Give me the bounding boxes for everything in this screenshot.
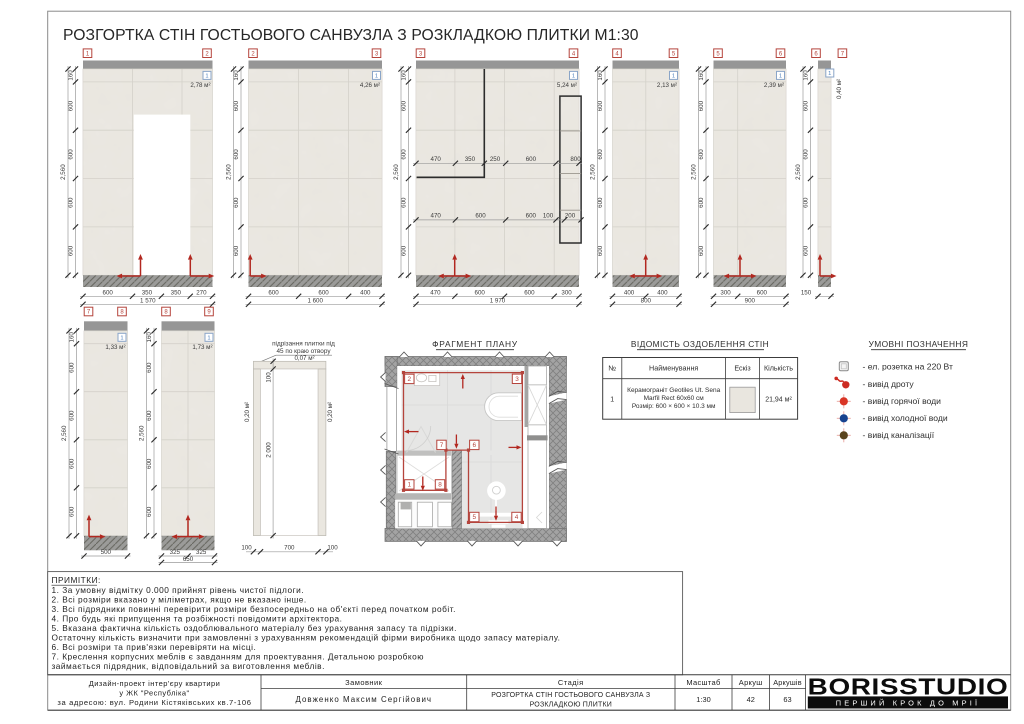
svg-text:РОЗКЛАДКОЮ ПЛИТКИ: РОЗКЛАДКОЮ ПЛИТКИ: [530, 702, 612, 709]
svg-text:600: 600: [698, 149, 705, 160]
svg-text:160: 160: [68, 70, 75, 81]
svg-text:200: 200: [565, 213, 576, 220]
svg-text:за адресою: вул. Родини Кістяк: за адресою: вул. Родини Кістяківських кв…: [57, 698, 251, 707]
svg-text:600: 600: [69, 362, 76, 373]
svg-text:160: 160: [803, 70, 810, 81]
svg-text:1,73 м²: 1,73 м²: [192, 344, 212, 351]
svg-text:600: 600: [103, 289, 114, 296]
svg-text:Масштаб: Масштаб: [686, 678, 720, 687]
svg-text:100: 100: [327, 545, 338, 552]
svg-text:600: 600: [698, 197, 705, 208]
svg-text:1 600: 1 600: [307, 297, 323, 304]
svg-text:600: 600: [401, 149, 408, 160]
svg-text:2,560: 2,560: [393, 164, 400, 180]
svg-text:у ЖК "Республіка": у ЖК "Республіка": [119, 688, 189, 697]
svg-text:1 970: 1 970: [490, 297, 506, 304]
svg-text:160: 160: [401, 70, 408, 81]
svg-text:6. Всі розміри та прив'язки пе: 6. Всі розміри та прив'язки перевіряти н…: [52, 642, 257, 652]
svg-text:Marfil Rect 60x60 см: Marfil Rect 60x60 см: [644, 395, 705, 402]
svg-text:100: 100: [543, 213, 554, 220]
svg-text:2,13 м²: 2,13 м²: [657, 82, 677, 89]
svg-text:800: 800: [641, 297, 652, 304]
svg-text:600: 600: [401, 245, 408, 256]
svg-text:100: 100: [265, 372, 272, 383]
svg-text:5,24 м²: 5,24 м²: [557, 82, 577, 89]
svg-text:160: 160: [69, 332, 76, 343]
svg-text:650: 650: [183, 556, 194, 563]
svg-text:3. Всі підрядники повинні пере: 3. Всі підрядники повинні перевірити роз…: [52, 604, 456, 614]
svg-text:2,560: 2,560: [226, 164, 233, 180]
svg-text:600: 600: [233, 245, 240, 256]
svg-text:Кількість: Кількість: [764, 364, 793, 373]
svg-text:2,560: 2,560: [139, 425, 146, 441]
svg-text:42: 42: [747, 695, 755, 704]
svg-text:№: №: [608, 364, 616, 373]
svg-text:- вивід горячої води: - вивід горячої води: [863, 396, 942, 406]
svg-text:Остаточну кількість визначити: Остаточну кількість визначити при замовл…: [52, 633, 561, 643]
svg-text:1: 1: [408, 482, 412, 489]
svg-text:- вивід каналізації: - вивід каналізації: [863, 430, 935, 440]
svg-text:600: 600: [69, 410, 76, 421]
svg-text:РОЗГОРТКА СТІН ГОСТЬОВОГО САНВ: РОЗГОРТКА СТІН ГОСТЬОВОГО САНВУЗЛА З РОЗ…: [63, 27, 639, 44]
svg-text:3: 3: [515, 376, 519, 383]
svg-text:600: 600: [146, 506, 153, 517]
svg-text:600: 600: [698, 100, 705, 111]
svg-text:600: 600: [475, 289, 486, 296]
svg-text:7. Креслення корпусних меблів: 7. Креслення корпусних меблів є завдання…: [52, 652, 425, 662]
svg-text:ПРИМІТКИ:: ПРИМІТКИ:: [52, 575, 101, 585]
svg-text:900: 900: [745, 297, 756, 304]
svg-text:8: 8: [438, 482, 442, 489]
svg-text:600: 600: [146, 410, 153, 421]
svg-text:2,560: 2,560: [60, 164, 67, 180]
svg-text:325: 325: [170, 549, 181, 556]
svg-text:470: 470: [430, 289, 441, 296]
svg-text:600: 600: [597, 245, 604, 256]
svg-text:2,560: 2,560: [795, 164, 802, 180]
svg-text:600: 600: [803, 197, 810, 208]
svg-text:600: 600: [68, 100, 75, 111]
svg-text:- ел. розетка на 220 Вт: - ел. розетка на 220 Вт: [863, 361, 953, 371]
svg-text:600: 600: [69, 458, 76, 469]
svg-text:700: 700: [284, 545, 295, 552]
svg-text:500: 500: [101, 549, 112, 556]
svg-text:1: 1: [207, 335, 210, 341]
svg-text:250: 250: [490, 156, 501, 163]
svg-text:300: 300: [561, 289, 572, 296]
svg-text:2 000: 2 000: [265, 442, 272, 458]
svg-text:600: 600: [526, 213, 537, 220]
svg-text:600: 600: [233, 100, 240, 111]
svg-text:800: 800: [570, 156, 581, 163]
svg-text:1: 1: [572, 73, 575, 79]
svg-text:2. Всі розміри вказано у мілім: 2. Всі розміри вказано у міліметрах, якщ…: [52, 594, 307, 604]
svg-text:600: 600: [68, 245, 75, 256]
svg-text:600: 600: [146, 458, 153, 469]
svg-text:Аркуш: Аркуш: [739, 678, 763, 687]
svg-text:1: 1: [205, 73, 208, 79]
svg-text:600: 600: [233, 149, 240, 160]
svg-text:63: 63: [783, 695, 791, 704]
svg-text:1:30: 1:30: [696, 695, 710, 704]
svg-text:Найменування: Найменування: [649, 364, 698, 373]
svg-text:1: 1: [120, 335, 123, 341]
svg-text:600: 600: [69, 506, 76, 517]
svg-text:7: 7: [440, 442, 444, 449]
svg-text:Замовник: Замовник: [345, 678, 382, 687]
svg-text:підрізання плитки під: підрізання плитки під: [272, 340, 335, 348]
svg-text:4. Про будь які припущення та: 4. Про будь які припущення та розбіжност…: [52, 613, 343, 623]
svg-text:2: 2: [408, 376, 412, 383]
svg-text:- вивід дроту: - вивід дроту: [863, 379, 915, 389]
svg-text:РОЗГОРТКА СТІН ГОСТЬОВОГО САНВ: РОЗГОРТКА СТІН ГОСТЬОВОГО САНВУЗЛА З: [491, 692, 650, 699]
svg-text:325: 325: [196, 549, 207, 556]
svg-text:600: 600: [268, 289, 279, 296]
svg-text:600: 600: [803, 245, 810, 256]
svg-text:4,26 м²: 4,26 м²: [360, 82, 380, 89]
svg-text:Стадія: Стадія: [558, 678, 584, 687]
svg-text:160: 160: [146, 332, 153, 343]
svg-text:600: 600: [803, 100, 810, 111]
svg-text:600: 600: [233, 197, 240, 208]
svg-text:0,40 м²: 0,40 м²: [836, 79, 843, 99]
svg-text:- вивід холодної води: - вивід холодної води: [863, 413, 948, 423]
svg-text:ВІДОМІСТЬ ОЗДОБЛЕННЯ СТІН: ВІДОМІСТЬ ОЗДОБЛЕННЯ СТІН: [631, 339, 769, 349]
svg-text:160: 160: [698, 70, 705, 81]
svg-text:Дизайн-проект інтер'єру кварти: Дизайн-проект інтер'єру квартири: [89, 679, 221, 688]
svg-text:Керамограніт Geotiles Ut. Sena: Керамограніт Geotiles Ut. Sena: [627, 386, 720, 394]
svg-text:1: 1: [828, 71, 831, 77]
svg-text:BORISSTUDIO: BORISSTUDIO: [808, 675, 1009, 700]
svg-text:Розмір: 600 × 600 × 10.3 мм: Розмір: 600 × 600 × 10.3 мм: [632, 402, 716, 410]
svg-text:300: 300: [720, 289, 731, 296]
svg-text:400: 400: [360, 289, 371, 296]
svg-text:Довженко Максим Сергійович: Довженко Максим Сергійович: [296, 695, 433, 704]
svg-text:600: 600: [68, 149, 75, 160]
svg-text:350: 350: [171, 289, 182, 296]
svg-text:21,94 м²: 21,94 м²: [765, 397, 792, 404]
svg-text:150: 150: [801, 289, 812, 296]
svg-text:600: 600: [475, 213, 486, 220]
svg-text:600: 600: [757, 289, 768, 296]
svg-text:600: 600: [597, 149, 604, 160]
svg-text:2,78 м²: 2,78 м²: [190, 82, 210, 89]
svg-text:270: 270: [196, 289, 207, 296]
svg-text:2,560: 2,560: [691, 164, 698, 180]
svg-text:600: 600: [803, 149, 810, 160]
svg-text:2,560: 2,560: [61, 425, 68, 441]
svg-text:600: 600: [401, 197, 408, 208]
svg-text:0,20 м²: 0,20 м²: [244, 402, 251, 422]
svg-text:1: 1: [779, 73, 782, 79]
svg-text:470: 470: [431, 156, 442, 163]
svg-text:ФРАГМЕНТ ПЛАНУ: ФРАГМЕНТ ПЛАНУ: [432, 339, 518, 349]
svg-text:470: 470: [431, 213, 442, 220]
svg-text:600: 600: [68, 197, 75, 208]
svg-text:0,20 м²: 0,20 м²: [327, 402, 334, 422]
svg-text:0,07 м²: 0,07 м²: [294, 355, 314, 362]
svg-text:Аркушів: Аркушів: [773, 678, 802, 687]
svg-text:400: 400: [657, 289, 668, 296]
svg-text:6: 6: [473, 442, 477, 449]
svg-text:600: 600: [597, 197, 604, 208]
svg-text:600: 600: [597, 100, 604, 111]
svg-text:1: 1: [375, 73, 378, 79]
svg-text:1. За умовну відмітку 0.000 пр: 1. За умовну відмітку 0.000 прийнят ріве…: [52, 585, 305, 595]
svg-text:600: 600: [146, 362, 153, 373]
svg-text:2,39 м²: 2,39 м²: [764, 82, 784, 89]
svg-text:2,560: 2,560: [590, 164, 597, 180]
svg-text:160: 160: [597, 70, 604, 81]
svg-text:600: 600: [698, 245, 705, 256]
svg-text:займається підрядник, відповід: займається підрядник, відповідальний за …: [52, 661, 325, 671]
svg-text:4: 4: [515, 514, 519, 521]
svg-text:600: 600: [526, 156, 537, 163]
svg-text:Ескіз: Ескіз: [734, 364, 751, 373]
svg-text:УМОВНІ ПОЗНАЧЕННЯ: УМОВНІ ПОЗНАЧЕННЯ: [869, 339, 969, 349]
svg-text:600: 600: [401, 100, 408, 111]
svg-text:100: 100: [241, 545, 252, 552]
svg-text:600: 600: [524, 289, 535, 296]
svg-text:5: 5: [473, 514, 477, 521]
svg-text:160: 160: [233, 70, 240, 81]
svg-text:1 570: 1 570: [140, 297, 156, 304]
svg-text:ПЕРШИЙ КРОК ДО МРІЇ: ПЕРШИЙ КРОК ДО МРІЇ: [836, 699, 981, 708]
svg-text:400: 400: [624, 289, 635, 296]
svg-text:350: 350: [142, 289, 153, 296]
svg-text:5. Вказана фактична кількість: 5. Вказана фактична кількість оздоблювал…: [52, 623, 457, 633]
svg-text:1,33 м²: 1,33 м²: [105, 344, 125, 351]
svg-text:1: 1: [672, 73, 675, 79]
svg-text:600: 600: [318, 289, 329, 296]
svg-text:1: 1: [610, 397, 614, 404]
svg-text:350: 350: [465, 156, 476, 163]
